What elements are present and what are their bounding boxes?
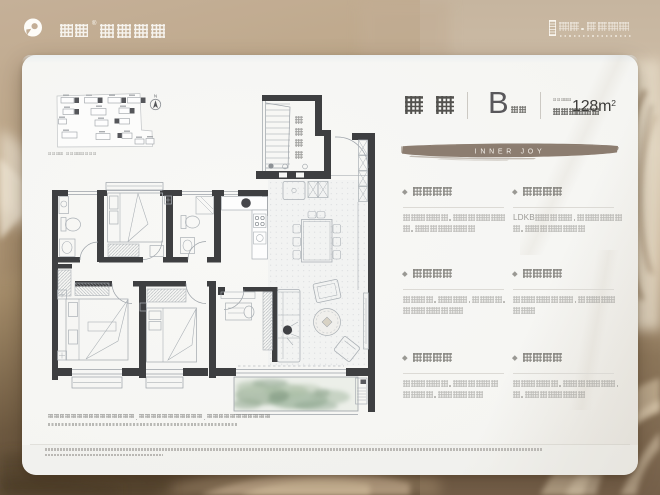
svg-text:INNER JOY: INNER JOY [475,149,546,156]
